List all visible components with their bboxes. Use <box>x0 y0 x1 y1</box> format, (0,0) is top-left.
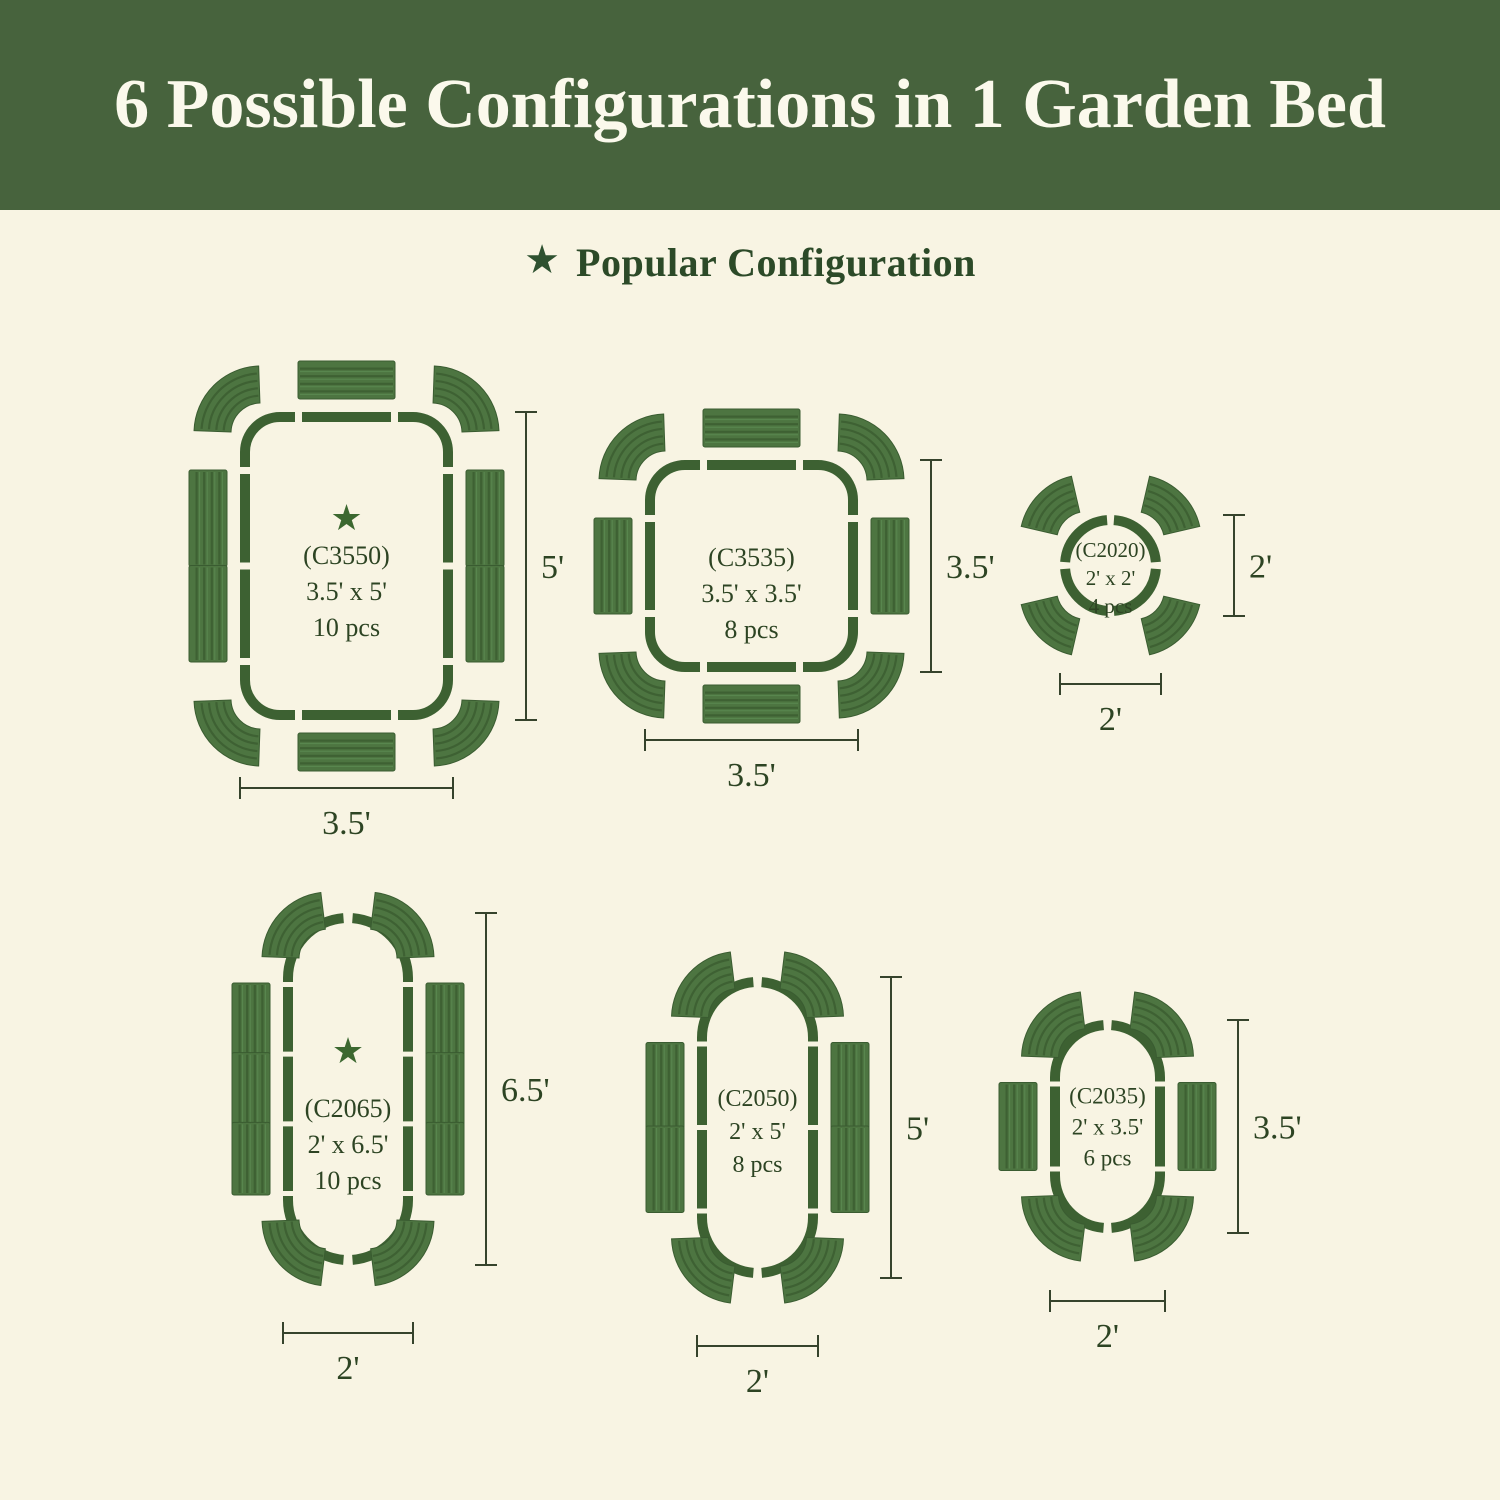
width-dimension-label: 3.5' <box>322 805 371 842</box>
config-pieces-label: 4 pcs <box>1089 594 1133 618</box>
corner-panel <box>838 652 904 718</box>
corner-panel <box>672 952 735 1017</box>
config-id-label: (C2035) <box>1069 1084 1146 1109</box>
side-panel <box>466 470 504 567</box>
config-diagram-c2065: 6.5'2'★(C2065)2' x 6.5'10 pcs <box>213 851 573 1400</box>
config-diagram-c3535: 3.5'3.5'(C3535)3.5' x 3.5'8 pcs <box>575 398 1018 807</box>
corner-panel <box>1022 992 1085 1057</box>
page-title: 6 Possible Configurations in 1 Garden Be… <box>114 65 1386 145</box>
corner-panel <box>1141 476 1200 535</box>
side-panel <box>999 1083 1037 1171</box>
height-dimension-label: 3.5' <box>1253 1110 1302 1147</box>
side-panel <box>232 983 270 1056</box>
side-panel <box>189 470 227 567</box>
side-panel <box>232 1053 270 1126</box>
corner-panel <box>433 700 499 766</box>
corner-panel <box>194 700 260 766</box>
config-id-label: (C2065) <box>305 1094 392 1123</box>
corner-panel <box>1021 596 1080 655</box>
corner-panel <box>780 952 843 1017</box>
corner-panel <box>1141 596 1200 655</box>
bed-corner-piece <box>245 665 295 715</box>
side-panel <box>871 518 909 614</box>
config-diagram-c2035: 3.5'2'(C2035)2' x 3.5'6 pcs <box>980 958 1325 1368</box>
config-size-label: 2' x 3.5' <box>1072 1115 1144 1140</box>
corner-panel <box>262 1220 325 1285</box>
height-dimension-label: 3.5' <box>946 549 995 586</box>
width-dimension-label: 2' <box>746 1363 769 1400</box>
corner-panel <box>371 1220 434 1285</box>
side-panel <box>232 1122 270 1195</box>
header-banner: 6 Possible Configurations in 1 Garden Be… <box>0 0 1500 210</box>
side-panel <box>426 1122 464 1195</box>
config-diagram-c3550: 5'3.5'★(C3550)3.5' x 5'10 pcs <box>170 350 613 855</box>
side-panel <box>466 566 504 663</box>
bed-corner-piece <box>398 665 448 715</box>
corner-panel <box>1130 1196 1193 1261</box>
config-pieces-label: 8 pcs <box>733 1152 783 1178</box>
popular-configuration-label: Popular Configuration <box>576 239 976 286</box>
popular-star-icon: ★ <box>330 498 362 539</box>
bed-corner-piece <box>245 417 295 467</box>
side-panel <box>426 983 464 1056</box>
side-panel <box>646 1043 684 1130</box>
width-dimension-label: 2' <box>1096 1318 1119 1355</box>
config-pieces-label: 6 pcs <box>1084 1146 1132 1171</box>
corner-panel <box>1130 992 1193 1057</box>
config-diagram-c2050: 5'2'(C2050)2' x 5'8 pcs <box>627 915 978 1413</box>
corner-panel <box>1022 1196 1085 1261</box>
side-panel <box>594 518 632 614</box>
config-pieces-label: 10 pcs <box>313 613 380 642</box>
dimension-lines <box>1050 1020 1249 1312</box>
star-icon: ★ <box>524 240 560 280</box>
side-panel <box>189 566 227 663</box>
config-pieces-label: 8 pcs <box>724 615 778 644</box>
config-size-label: 2' x 2' <box>1086 566 1136 590</box>
height-dimension-label: 2' <box>1249 549 1272 586</box>
config-id-label: (C3550) <box>303 541 390 570</box>
bed-corner-piece <box>803 617 853 667</box>
config-size-label: 2' x 6.5' <box>308 1130 389 1159</box>
infographic: 6 Possible Configurations in 1 Garden Be… <box>0 0 1500 1500</box>
height-dimension-label: 5' <box>541 549 564 586</box>
corner-panel <box>599 414 665 480</box>
side-panel <box>831 1126 869 1213</box>
height-dimension-label: 5' <box>906 1111 929 1148</box>
side-panel <box>831 1043 869 1130</box>
corner-panel <box>194 366 260 432</box>
corner-panel <box>262 893 325 958</box>
side-panel <box>1178 1083 1216 1171</box>
side-panel <box>298 733 395 771</box>
corner-panel <box>838 414 904 480</box>
corner-panel <box>1021 476 1080 535</box>
corner-panel <box>672 1238 735 1303</box>
bed-corner-piece <box>398 417 448 467</box>
popular-configuration-legend: ★ Popular Configuration <box>0 230 1500 294</box>
config-size-label: 3.5' x 3.5' <box>701 579 801 608</box>
bed-corner-piece <box>803 465 853 515</box>
config-diagram-c2020: 2'2'(C2020)2' x 2'4 pcs <box>990 453 1321 751</box>
side-panel <box>703 409 800 447</box>
bed-outline <box>288 918 408 1260</box>
bed-corner-piece <box>650 465 700 515</box>
config-size-label: 2' x 5' <box>729 1119 786 1145</box>
side-panel <box>703 685 800 723</box>
side-panel <box>426 1053 464 1126</box>
exploded-panels <box>232 893 464 1286</box>
config-size-label: 3.5' x 5' <box>306 577 387 606</box>
corner-panel <box>433 366 499 432</box>
width-dimension-label: 2' <box>1099 701 1122 738</box>
corner-panel <box>371 893 434 958</box>
config-id-label: (C3535) <box>708 543 795 572</box>
height-dimension-label: 6.5' <box>501 1072 550 1109</box>
width-dimension-label: 2' <box>336 1350 359 1387</box>
corner-panel <box>780 1238 843 1303</box>
config-id-label: (C2050) <box>718 1086 798 1112</box>
config-id-label: (C2020) <box>1076 538 1146 562</box>
corner-panel <box>599 652 665 718</box>
side-panel <box>646 1126 684 1213</box>
width-dimension-label: 3.5' <box>727 757 776 794</box>
popular-star-icon: ★ <box>332 1031 364 1072</box>
bed-corner-piece <box>650 617 700 667</box>
config-pieces-label: 10 pcs <box>314 1166 381 1195</box>
side-panel <box>298 361 395 399</box>
